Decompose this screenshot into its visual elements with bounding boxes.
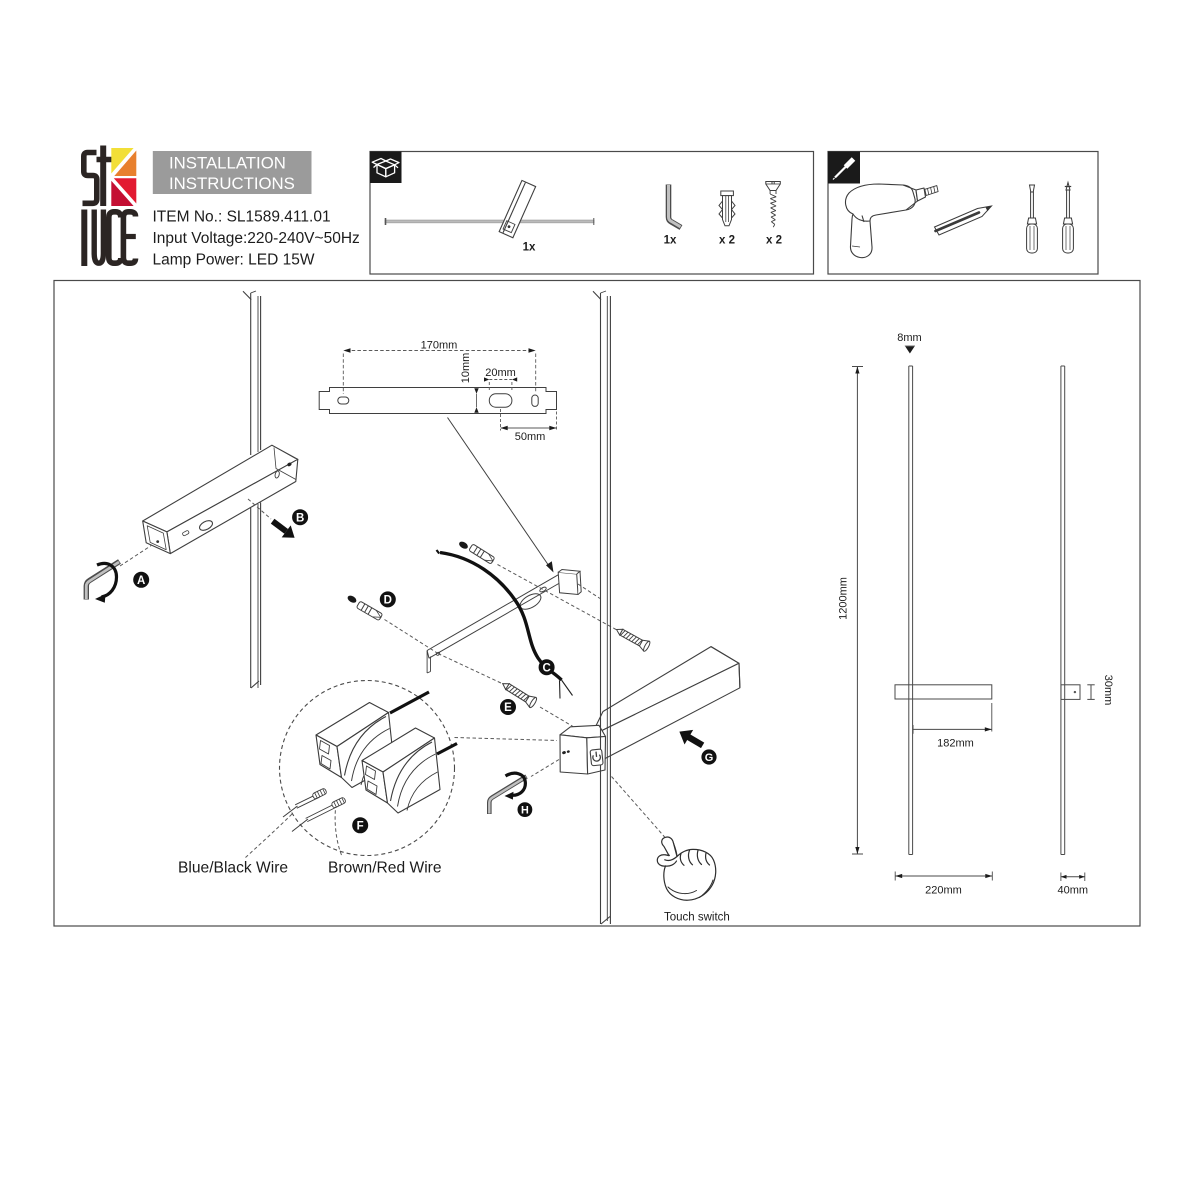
svg-text:1x: 1x [523, 242, 536, 254]
svg-text:220mm: 220mm [925, 885, 962, 897]
svg-text:INSTALLATION: INSTALLATION [169, 154, 286, 173]
svg-text:x 2: x 2 [766, 235, 782, 247]
svg-text:20mm: 20mm [485, 367, 516, 379]
svg-text:40mm: 40mm [1058, 885, 1089, 897]
svg-text:B: B [296, 512, 304, 524]
svg-text:Brown/Red Wire: Brown/Red Wire [328, 860, 442, 877]
svg-text:H: H [521, 805, 529, 817]
svg-text:ITEM No.: SL1589.411.01: ITEM No.: SL1589.411.01 [153, 209, 331, 226]
svg-text:30mm: 30mm [1102, 675, 1114, 706]
svg-text:Lamp Power: LED 15W: Lamp Power: LED 15W [153, 251, 315, 268]
svg-text:G: G [705, 752, 714, 764]
svg-text:10mm: 10mm [460, 353, 472, 384]
svg-text:Blue/Black Wire: Blue/Black Wire [178, 860, 288, 877]
svg-text:1200mm: 1200mm [838, 577, 850, 620]
svg-text:INSTRUCTIONS: INSTRUCTIONS [169, 174, 295, 193]
svg-text:Input Voltage:220-240V~50Hz: Input Voltage:220-240V~50Hz [153, 230, 360, 247]
svg-text:x 2: x 2 [719, 235, 735, 247]
svg-text:A: A [137, 575, 145, 587]
svg-text:E: E [504, 702, 512, 714]
svg-text:8mm: 8mm [897, 332, 921, 344]
svg-text:50mm: 50mm [515, 431, 546, 443]
svg-text:182mm: 182mm [937, 738, 974, 750]
svg-text:Touch switch: Touch switch [664, 912, 730, 924]
svg-text:D: D [384, 595, 392, 607]
svg-text:1x: 1x [664, 235, 677, 247]
svg-text:170mm: 170mm [421, 340, 458, 352]
svg-text:C: C [542, 662, 550, 674]
svg-text:F: F [357, 821, 364, 833]
